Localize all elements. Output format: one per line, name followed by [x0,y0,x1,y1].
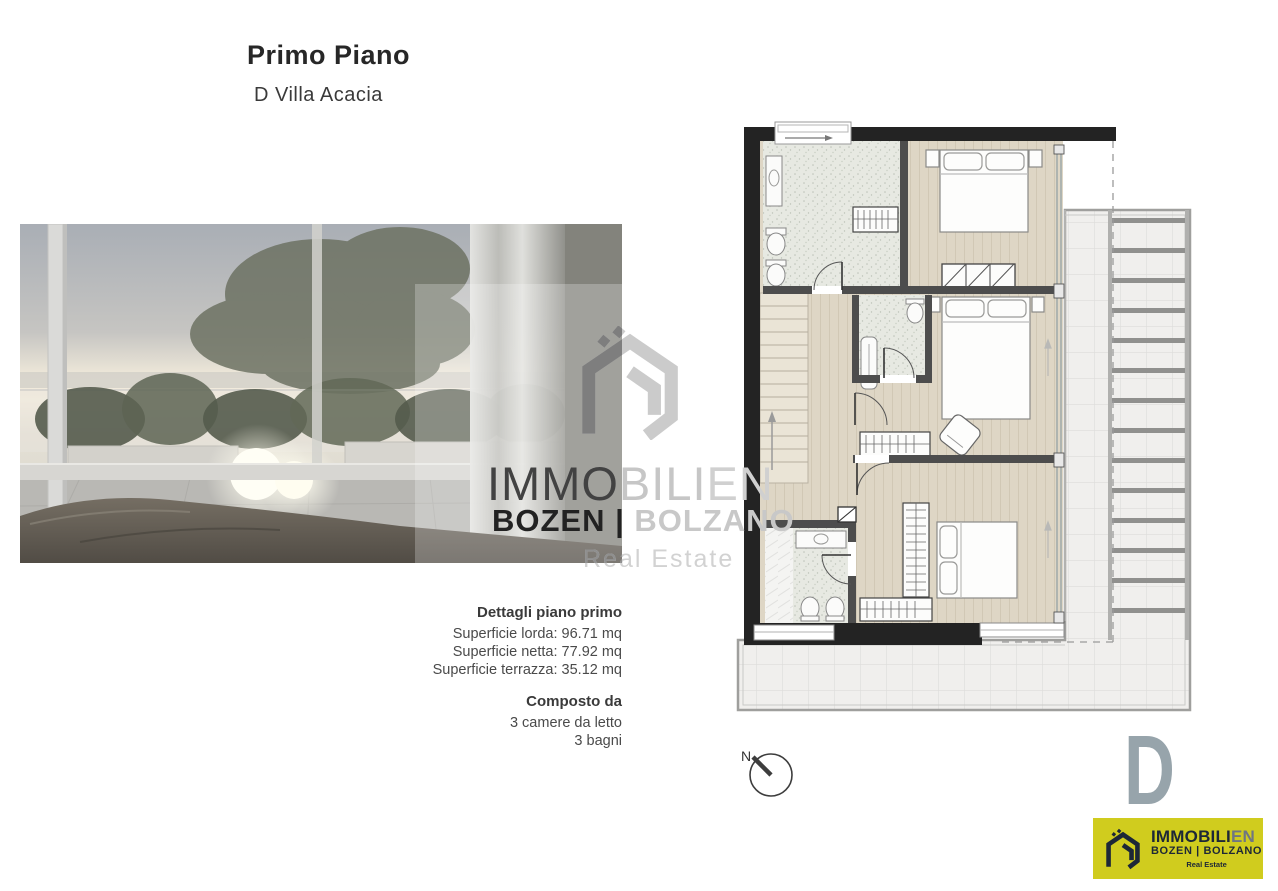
wardrobe-icon-bedroom2 [860,432,930,456]
details-heading: Dettagli piano primo [380,604,622,621]
details-line: 3 camere da letto [380,714,622,732]
details-line: Superficie terrazza: 35.12 mq [380,661,622,679]
logo-cities: BOZEN | BOLZANO [1151,845,1262,859]
floor-details: Dettagli piano primo Superficie lorda: 9… [380,604,622,750]
bed-icon-bedroom2 [928,297,1044,419]
floor-plan-drawing [730,118,1200,718]
wardrobe-icon-bedroom1 [942,264,1015,289]
terrace-photo [20,224,622,563]
bed-icon-bedroom1 [926,150,1042,232]
logo-brand: IMMOBILIEN [1151,828,1255,845]
details-line: 3 bagni [380,732,622,750]
floor-plan [730,118,1200,718]
compass-north-label: N [741,748,751,764]
header: Primo Piano D Villa Acacia [247,40,410,107]
stairs-icon [760,293,808,483]
page-title: Primo Piano [247,40,410,71]
wardrobe-icon-bedroom3-side [903,503,929,597]
unit-letter: D [1124,732,1175,808]
entrance-door [775,122,851,144]
page-subtitle: D Villa Acacia [254,84,410,107]
logo-text: IMMOBILIEN BOZEN | BOLZANO Real Estate [1151,828,1262,870]
wardrobe-icon-bedroom3-bottom [860,598,932,621]
shower-floor [765,528,793,623]
compass-icon: N [738,740,810,804]
bed-icon-bedroom3 [937,522,1017,598]
composition-heading: Composto da [380,693,622,710]
details-line: Superficie lorda: 96.71 mq [380,625,622,643]
wardrobe-icon-hall [853,207,898,232]
logo-house-icon [1102,826,1144,872]
brand-logo: IMMOBILIEN BOZEN | BOLZANO Real Estate [1093,818,1263,879]
details-line: Superficie netta: 77.92 mq [380,643,622,661]
logo-tagline: Real Estate [1186,860,1226,869]
shaft-icon [838,507,856,522]
watermark-backdrop [415,284,622,563]
